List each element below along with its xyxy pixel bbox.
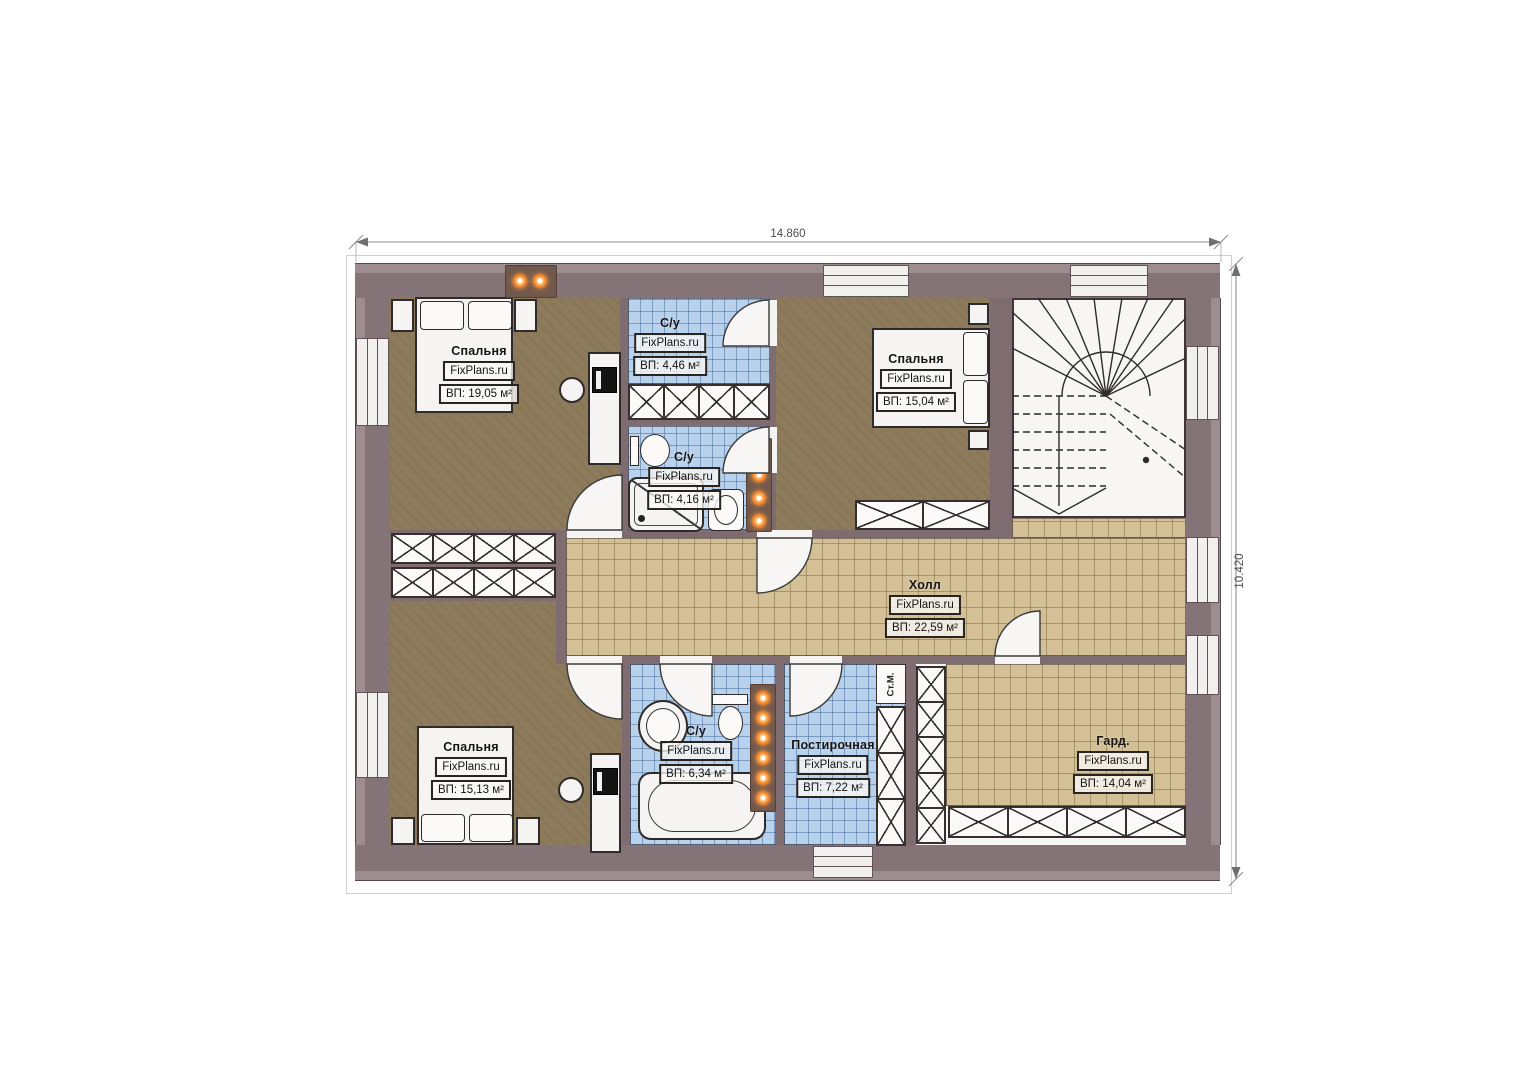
closet-cell: [856, 501, 923, 529]
wall-lamp: [755, 750, 771, 766]
closet-laundry: [876, 706, 906, 846]
window: [356, 692, 389, 778]
dimension-width: 14.860: [770, 228, 805, 240]
tv-monitor: [592, 367, 617, 393]
wall-lamp: [755, 770, 771, 786]
wall-lamp: [751, 467, 767, 483]
nightstand: [516, 817, 540, 845]
room-name: С/у: [659, 724, 733, 738]
closet-cell: [1067, 807, 1126, 837]
pillow: [469, 814, 513, 842]
room-label-bedroom-top-left: Спальня FixPlans.ru ВП: 19,05 м²: [439, 344, 519, 404]
closet-bedroom-top-right: [855, 500, 990, 530]
watermark: FixPlans.ru: [660, 741, 732, 761]
nightstand: [968, 303, 989, 325]
washing-machine: Ст.М.: [876, 664, 906, 704]
room-name: Гард.: [1073, 734, 1153, 748]
room-label-bedroom-bottom-left: Спальня FixPlans.ru ВП: 15,13 м²: [431, 740, 511, 800]
wall-lamp: [755, 710, 771, 726]
watermark: FixPlans.ru: [889, 595, 961, 615]
closet-cell: [1008, 807, 1067, 837]
room-area: ВП: 6,34 м²: [659, 764, 733, 784]
room-area: ВП: 14,04 м²: [1073, 774, 1153, 794]
exterior-wall-bottom: [355, 845, 1220, 881]
bathtub-inner: [648, 780, 756, 832]
room-area: ВП: 19,05 м²: [439, 384, 519, 404]
wall-lamp: [751, 490, 767, 506]
floor-plan-canvas: Ст.М.: [0, 0, 1528, 1080]
window: [823, 265, 909, 297]
closet-cell: [433, 568, 474, 597]
watermark: FixPlans.ru: [443, 361, 515, 381]
room-hall: [566, 538, 1186, 656]
watermark: FixPlans.ru: [797, 755, 869, 775]
door-gap: [660, 656, 712, 664]
closet-wardrobe-bottom: [948, 806, 1186, 838]
pillow: [468, 301, 512, 330]
window: [1186, 635, 1219, 695]
closet-cell: [474, 534, 515, 563]
room-label-bathroom-top: С/у FixPlans.ru ВП: 4,46 м²: [633, 316, 707, 376]
door-gap: [769, 300, 777, 346]
wall-lamp: [755, 690, 771, 706]
watermark: FixPlans.ru: [435, 757, 507, 777]
room-name: Спальня: [876, 352, 956, 366]
pillow: [420, 301, 464, 330]
closet-cell: [699, 385, 734, 419]
room-label-bathroom-middle: С/у FixPlans.ru ВП: 4,16 м²: [647, 450, 721, 510]
room-area: ВП: 4,46 м²: [633, 356, 707, 376]
pillow: [963, 332, 988, 376]
dimension-height: 10.420: [1234, 553, 1246, 588]
room-area: ВП: 4,16 м²: [647, 490, 721, 510]
door-gap: [790, 656, 842, 664]
room-label-bathroom-bottom: С/у FixPlans.ru ВП: 6,34 м²: [659, 724, 733, 784]
room-area: ВП: 22,59 м²: [885, 618, 965, 638]
closet-cell: [433, 534, 474, 563]
room-label-wardrobe: Гард. FixPlans.ru ВП: 14,04 м²: [1073, 734, 1153, 794]
room-area: ВП: 7,22 м²: [796, 778, 870, 798]
closet-cell: [474, 568, 515, 597]
closet-cell: [877, 753, 905, 799]
room-label-laundry: Постирочная FixPlans.ru ВП: 7,22 м²: [791, 738, 874, 798]
nightstand: [514, 299, 537, 332]
room-label-bedroom-top-right: Спальня FixPlans.ru ВП: 15,04 м²: [876, 352, 956, 412]
watermark: FixPlans.ru: [880, 369, 952, 389]
closet-cell: [877, 799, 905, 845]
closet-cell: [514, 568, 555, 597]
closet-cell: [629, 385, 664, 419]
room-name: Спальня: [439, 344, 519, 358]
wall-lamp: [755, 790, 771, 806]
closet-cell: [664, 385, 699, 419]
pillow: [421, 814, 465, 842]
room-area: ВП: 15,04 м²: [876, 392, 956, 412]
chair: [559, 377, 585, 403]
toilet-tank: [712, 694, 748, 705]
wall-lamp: [751, 513, 767, 529]
watermark: FixPlans.ru: [1077, 751, 1149, 771]
room-name: Холл: [885, 578, 965, 592]
wall-lamp: [755, 730, 771, 746]
wall-lamp: [532, 273, 548, 289]
watermark: FixPlans.ru: [634, 333, 706, 353]
wall-lamp: [512, 273, 528, 289]
window: [1070, 265, 1148, 297]
wall-lamp: [751, 444, 767, 460]
toilet-tank: [630, 436, 639, 466]
room-name: Спальня: [431, 740, 511, 754]
closet-cell: [734, 385, 769, 419]
closet-cell: [917, 667, 945, 702]
watermark: FixPlans.ru: [648, 467, 720, 487]
hall-under-stairs: [1012, 518, 1186, 538]
door-gap: [995, 656, 1040, 664]
window: [1186, 346, 1219, 420]
door-gap: [567, 656, 622, 664]
closet-wardrobe-left: [916, 666, 946, 844]
pillow: [963, 380, 988, 424]
room-label-hall: Холл FixPlans.ru ВП: 22,59 м²: [885, 578, 965, 638]
closet-cell: [923, 501, 990, 529]
room-name: С/у: [633, 316, 707, 330]
closet-cell: [392, 534, 433, 563]
closet-top-bathroom: [628, 384, 770, 420]
nightstand: [391, 299, 414, 332]
window: [813, 846, 873, 878]
room-name: Постирочная: [791, 738, 874, 752]
nightstand: [968, 430, 989, 450]
closet-cell: [877, 707, 905, 753]
room-name: С/у: [647, 450, 721, 464]
closet-cell: [392, 568, 433, 597]
window: [1186, 537, 1219, 603]
closet-cell: [917, 773, 945, 808]
closet-cell: [917, 702, 945, 737]
closet-cell: [917, 737, 945, 772]
room-area: ВП: 15,13 м²: [431, 780, 511, 800]
closet-cell: [949, 807, 1008, 837]
chair: [558, 777, 584, 803]
tv-monitor: [593, 768, 618, 795]
door-gap: [567, 530, 622, 538]
staircase-area: [1012, 298, 1186, 518]
closet-cell: [1126, 807, 1185, 837]
closet-cell: [514, 534, 555, 563]
closet-niche-upper: [391, 533, 556, 564]
nightstand: [391, 817, 415, 845]
window: [356, 338, 389, 426]
closet-niche-lower: [391, 567, 556, 598]
closet-cell: [917, 808, 945, 843]
washing-machine-label: Ст.М.: [886, 672, 897, 696]
